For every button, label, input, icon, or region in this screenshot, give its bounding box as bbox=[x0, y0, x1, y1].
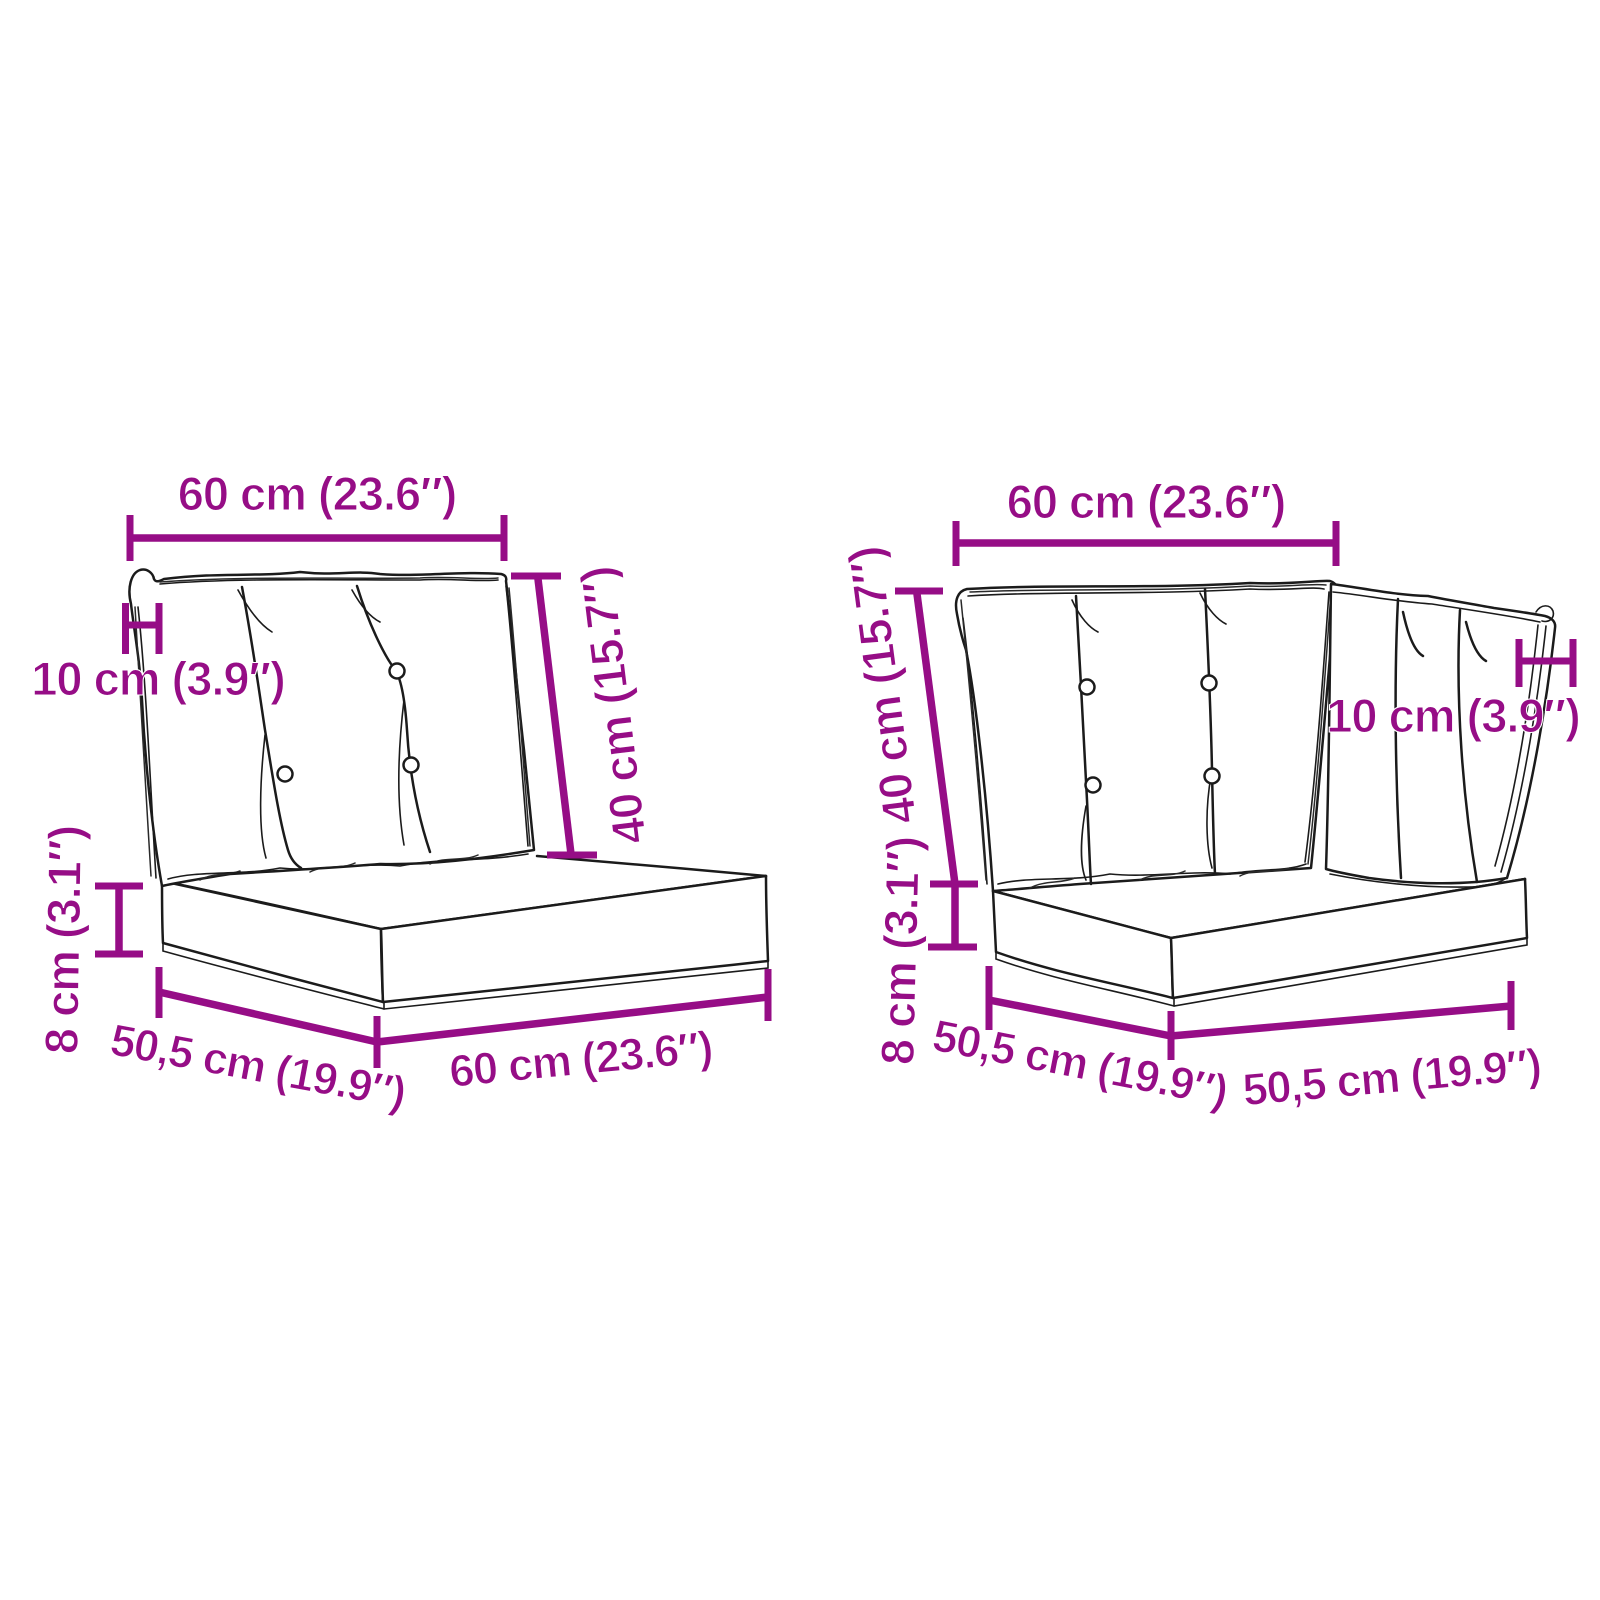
svg-text:8 cm (3.1″): 8 cm (3.1″) bbox=[35, 825, 92, 1054]
svg-text:8 cm (3.1″): 8 cm (3.1″) bbox=[871, 836, 930, 1066]
svg-text:60 cm (23.6″): 60 cm (23.6″) bbox=[178, 467, 457, 520]
svg-text:10 cm (3.9″): 10 cm (3.9″) bbox=[1326, 689, 1579, 742]
svg-text:10 cm (3.9″): 10 cm (3.9″) bbox=[31, 652, 284, 705]
svg-text:60 cm (23.6″): 60 cm (23.6″) bbox=[1007, 475, 1286, 528]
